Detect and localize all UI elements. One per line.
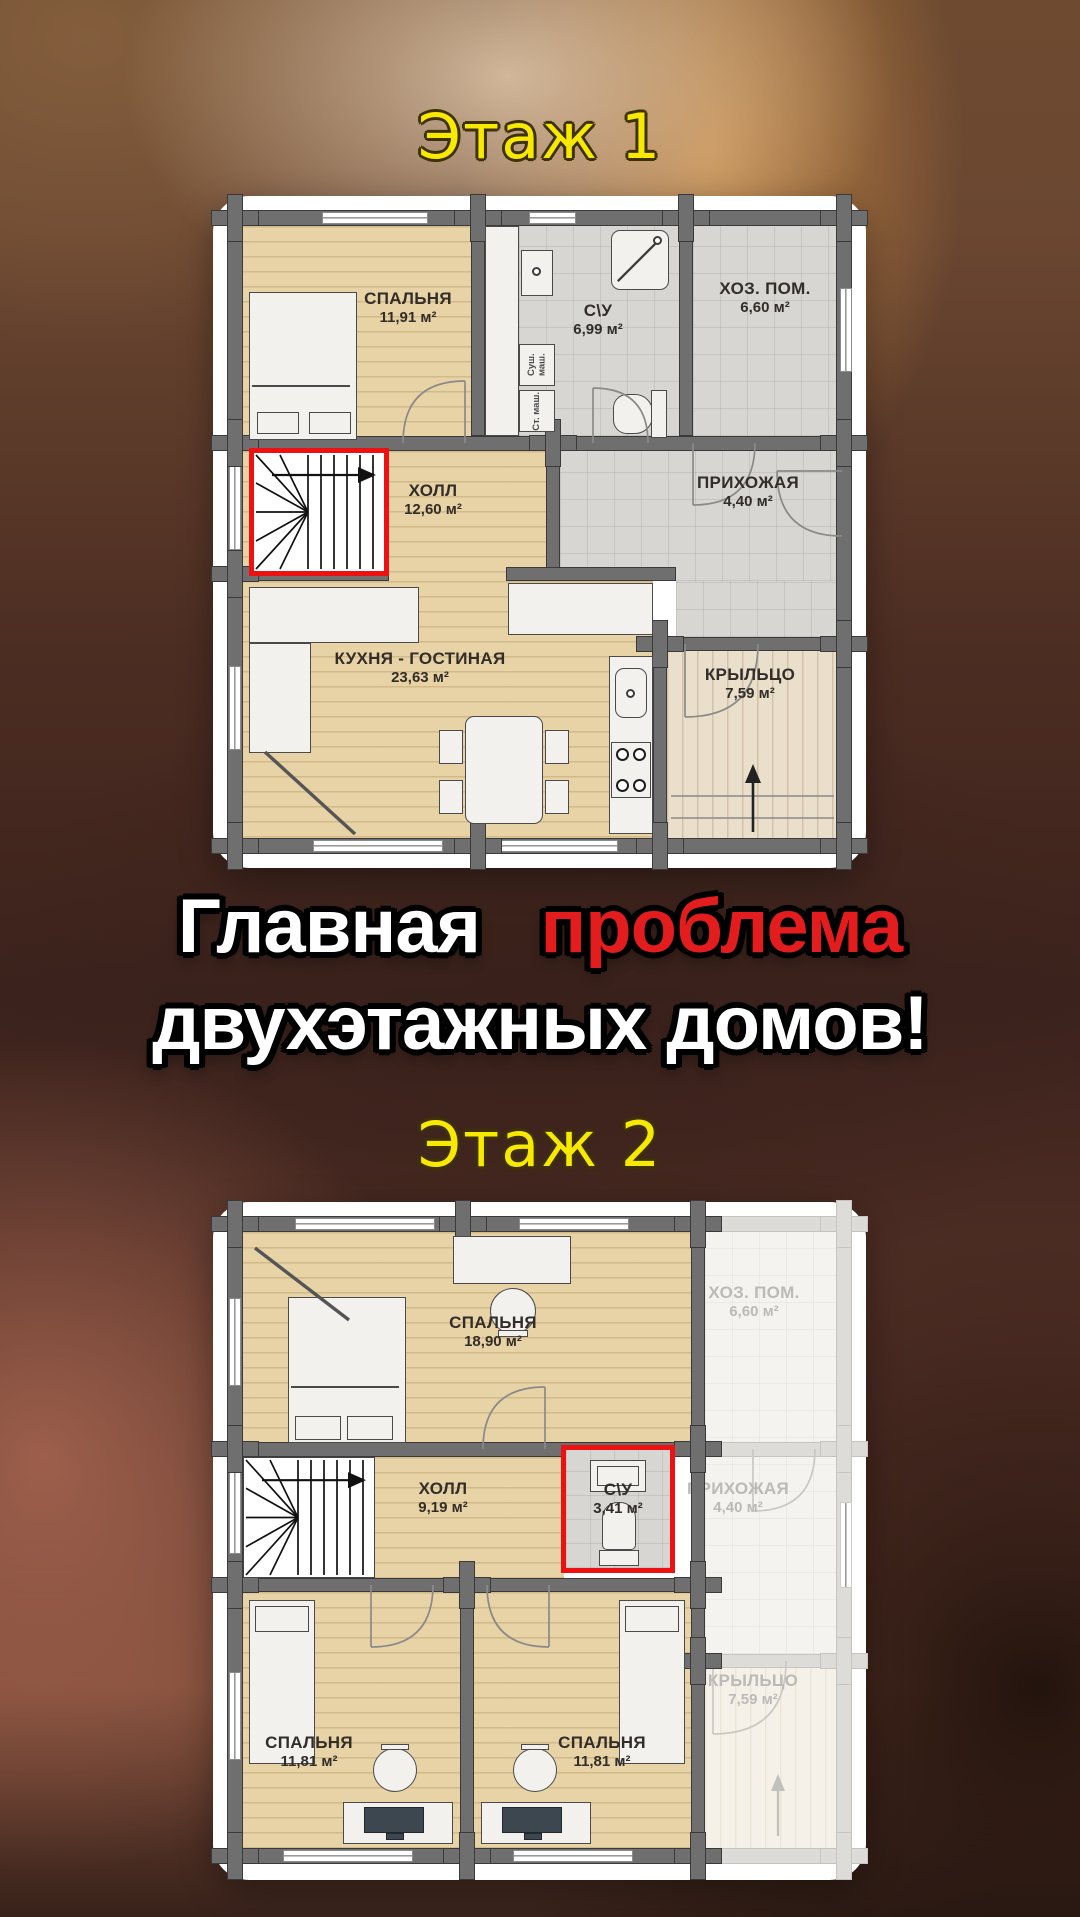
desk bbox=[481, 1802, 591, 1844]
floor2-title: Этаж 2 bbox=[0, 1108, 1080, 1181]
chair bbox=[439, 780, 463, 814]
chair bbox=[545, 730, 569, 764]
room-label-bedroom-right: СПАЛЬНЯ 11,81 м² bbox=[541, 1732, 663, 1772]
room-name: ХОЛЛ bbox=[371, 480, 495, 501]
room-name: КУХНЯ - ГОСТИНАЯ bbox=[323, 648, 517, 669]
staircase-icon bbox=[254, 453, 384, 571]
room-name: С\У bbox=[582, 1479, 654, 1500]
room-label-bedroom: СПАЛЬНЯ 11,91 м² bbox=[343, 288, 473, 328]
floor1-plan-card: Суш. маш. Ст. маш. bbox=[213, 196, 866, 868]
room-label-entry: ПРИХОЖАЯ 4,40 м² bbox=[671, 472, 825, 512]
room-area: 11,91 м² bbox=[343, 309, 473, 328]
staircase-highlight-floor1 bbox=[249, 448, 389, 576]
kitchen-sink bbox=[615, 668, 647, 718]
room-name: СПАЛЬНЯ bbox=[248, 1732, 370, 1753]
chair-back bbox=[381, 1744, 409, 1750]
room-area: 18,90 м² bbox=[428, 1333, 558, 1352]
room-name: ПРИХОЖАЯ bbox=[671, 472, 825, 493]
room-label-hall: ХОЛЛ 9,19 м² bbox=[381, 1478, 505, 1518]
poster: Этаж 1 bbox=[0, 0, 1080, 1917]
room-area: 12,60 м² bbox=[371, 501, 495, 520]
desk bbox=[343, 1802, 453, 1844]
room-label-bathroom: С\У 6,99 м² bbox=[543, 300, 653, 340]
room-name: СПАЛЬНЯ bbox=[343, 288, 473, 309]
room-name: С\У bbox=[543, 300, 653, 321]
room-area: 7,59 м² bbox=[683, 685, 817, 704]
room-area: 11,81 м² bbox=[248, 1753, 370, 1772]
pillow bbox=[347, 1416, 393, 1440]
room-name: ХОЛЛ bbox=[381, 1478, 505, 1499]
room-label-utility: ХОЗ. ПОМ. 6,60 м² bbox=[700, 278, 830, 318]
room-area: 6,60 м² bbox=[700, 299, 830, 318]
room-area: 9,19 м² bbox=[381, 1499, 505, 1518]
chair bbox=[439, 730, 463, 764]
toilet bbox=[613, 394, 653, 434]
room-label-porch: КРЫЛЬЦО 7,59 м² bbox=[683, 664, 817, 704]
headline: Главная проблема двухэтажных домов! bbox=[0, 878, 1080, 1073]
room-label-bathroom: С\У 3,41 м² bbox=[582, 1479, 654, 1519]
room-label-bedroom-left: СПАЛЬНЯ 11,81 м² bbox=[248, 1732, 370, 1772]
room-name: ХОЗ. ПОМ. bbox=[700, 278, 830, 299]
chair bbox=[545, 780, 569, 814]
room-area: 6,99 м² bbox=[543, 321, 653, 340]
floor2-plan-card: ХОЗ. ПОМ. 6,60 м² ПРИХОЖАЯ 4,40 м² КРЫЛЬ… bbox=[213, 1202, 866, 1880]
room-name: КРЫЛЬЦО bbox=[683, 664, 817, 685]
pillow bbox=[255, 1606, 309, 1632]
room-area: 23,63 м² bbox=[323, 669, 517, 688]
room-label-kitchen: КУХНЯ - ГОСТИНАЯ 23,63 м² bbox=[323, 648, 517, 688]
floor1-title: Этаж 1 bbox=[0, 100, 1080, 173]
sofa bbox=[249, 587, 419, 643]
dryer-label: Суш. маш. bbox=[527, 345, 548, 385]
room-area: 11,81 м² bbox=[541, 1753, 663, 1772]
washer-label: Ст. маш. bbox=[532, 392, 542, 431]
pillow bbox=[257, 412, 299, 434]
dining-table bbox=[465, 716, 543, 824]
stove bbox=[611, 742, 651, 798]
desk-chair bbox=[373, 1748, 417, 1792]
headline-line2: двухэтажных домов! bbox=[152, 981, 927, 1066]
pillow bbox=[625, 1606, 679, 1632]
desk bbox=[453, 1236, 571, 1284]
pillow bbox=[309, 412, 351, 434]
headline-word1: Главная bbox=[178, 884, 480, 969]
room-area: 4,40 м² bbox=[671, 493, 825, 512]
room-area: 3,41 м² bbox=[582, 1500, 654, 1519]
shower bbox=[611, 230, 669, 290]
dryer-machine: Суш. маш. bbox=[519, 344, 555, 386]
headline-word2: проблема bbox=[540, 884, 902, 969]
room-label-hall: ХОЛЛ 12,60 м² bbox=[371, 480, 495, 520]
pillow bbox=[295, 1416, 341, 1440]
wardrobe bbox=[485, 226, 519, 436]
room-name: СПАЛЬНЯ bbox=[428, 1312, 558, 1333]
floor2-furniture-layer bbox=[213, 1202, 866, 1880]
toilet-tank bbox=[651, 390, 667, 438]
bathroom-sink bbox=[521, 250, 553, 296]
sofa-corner bbox=[249, 643, 311, 753]
kitchen-cabinets bbox=[508, 583, 653, 635]
washing-machine: Ст. маш. bbox=[519, 390, 555, 432]
room-name: СПАЛЬНЯ bbox=[541, 1732, 663, 1753]
room-label-bedroom-big: СПАЛЬНЯ 18,90 м² bbox=[428, 1312, 558, 1352]
